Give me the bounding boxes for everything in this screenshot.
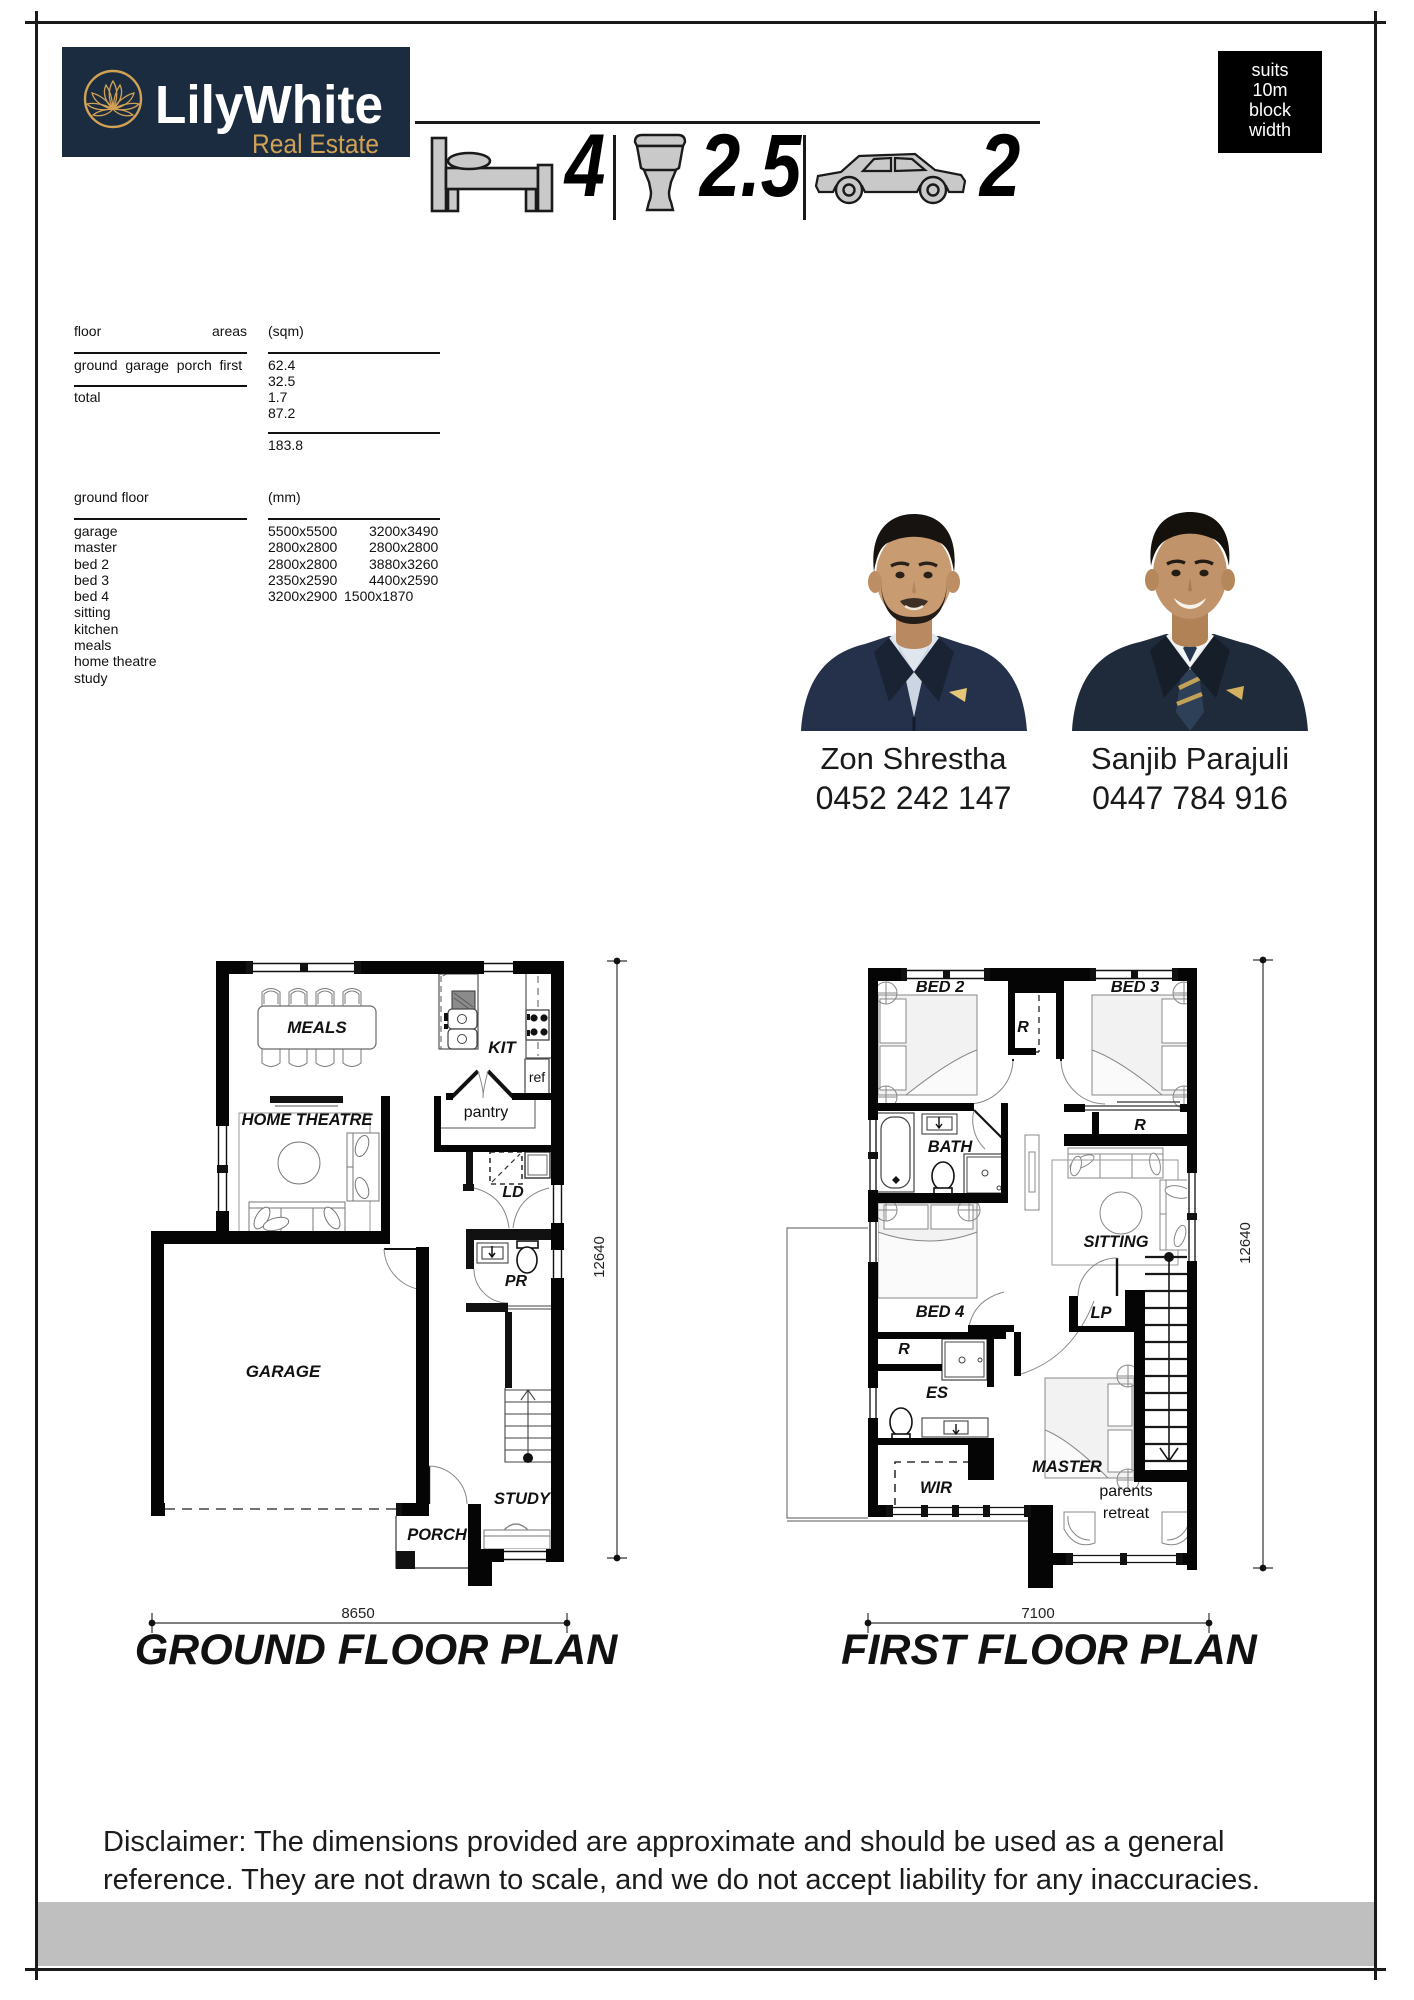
- svg-text:retreat: retreat: [1103, 1505, 1150, 1522]
- svg-text:PORCH: PORCH: [407, 1526, 468, 1544]
- svg-text:LD: LD: [502, 1184, 524, 1201]
- svg-text:pantry: pantry: [464, 1104, 508, 1121]
- svg-text:12640: 12640: [1237, 1222, 1254, 1264]
- svg-text:MASTER: MASTER: [1032, 1458, 1102, 1476]
- svg-text:WIR: WIR: [920, 1479, 952, 1497]
- svg-text:HOME THEATRE: HOME THEATRE: [242, 1111, 374, 1129]
- svg-text:MEALS: MEALS: [287, 1018, 347, 1037]
- svg-text:STUDY: STUDY: [494, 1490, 552, 1508]
- svg-text:R: R: [898, 1341, 910, 1358]
- svg-text:R: R: [1134, 1117, 1146, 1134]
- svg-text:LP: LP: [1090, 1304, 1112, 1322]
- svg-text:GARAGE: GARAGE: [246, 1362, 321, 1381]
- svg-text:8650: 8650: [341, 1605, 374, 1622]
- svg-text:parents: parents: [1099, 1483, 1152, 1500]
- svg-text:LilyWhite: LilyWhite: [155, 75, 383, 135]
- svg-text:BATH: BATH: [928, 1138, 974, 1156]
- svg-text:SITTING: SITTING: [1083, 1233, 1148, 1251]
- svg-text:7100: 7100: [1021, 1605, 1054, 1622]
- svg-text:ref: ref: [529, 1069, 545, 1085]
- svg-text:R: R: [1017, 1019, 1029, 1036]
- svg-text:KIT: KIT: [488, 1038, 517, 1057]
- svg-text:BED 4: BED 4: [916, 1303, 965, 1321]
- svg-text:Real Estate: Real Estate: [252, 129, 379, 157]
- svg-text:PR: PR: [505, 1273, 528, 1290]
- svg-text:ES: ES: [926, 1384, 948, 1402]
- svg-text:12640: 12640: [591, 1236, 608, 1278]
